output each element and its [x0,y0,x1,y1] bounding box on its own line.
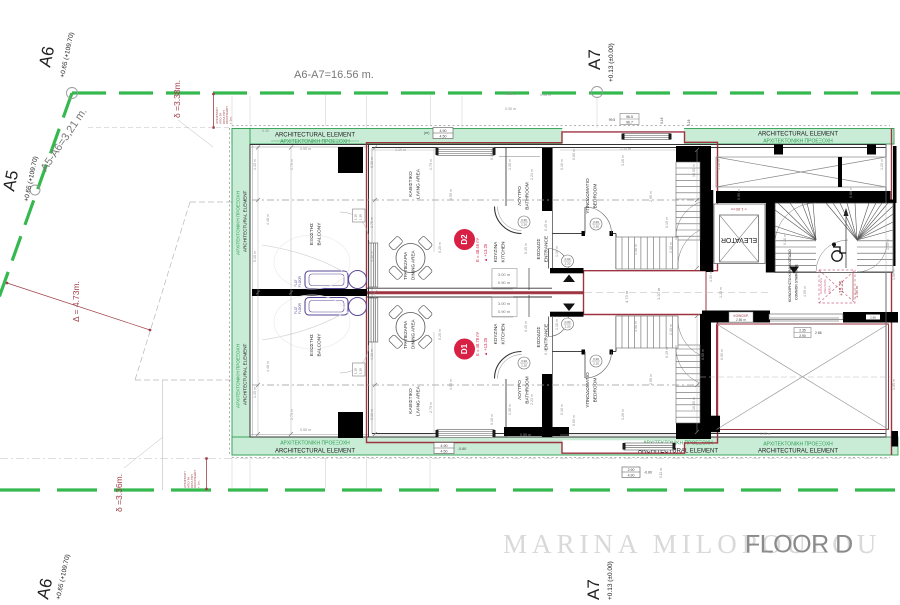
svg-text:D2: D2 [460,234,469,245]
svg-text:2.86 m: 2.86 m [736,318,746,322]
svg-text:0.90: 0.90 [521,359,527,363]
svg-text:+ 1m.: + 1m. [197,480,201,488]
svg-text:+0.13 (±0.00): +0.13 (±0.00) [608,43,615,82]
svg-text:1.10: 1.10 [354,214,358,220]
svg-text:ΚΑΘΙΣΤΙΚΟ: ΚΑΘΙΣΤΙΚΟ [408,171,414,197]
svg-text:+0.13 (±0.00): +0.13 (±0.00) [607,561,614,600]
svg-text:1.45 m: 1.45 m [886,239,890,250]
svg-text:ARCHITECTURAL ELEMENT: ARCHITECTURAL ELEMENT [275,133,355,139]
svg-text:1.35 m: 1.35 m [508,159,512,170]
svg-text:KITCHEN: KITCHEN [501,323,507,345]
svg-text:ΑΡΧΙΤΕΚΤΟΝΙΚΗ ΠΡΟΕΞΟΧΗ: ΑΡΧΙΤΕΚΤΟΝΙΚΗ ΠΡΟΕΞΟΧΗ [236,344,241,408]
svg-text:0.60 m: 0.60 m [572,415,576,426]
svg-text:0.55 m: 0.55 m [300,147,311,151]
svg-text:1.50 m: 1.50 m [892,269,896,280]
svg-text:D1: D1 [460,343,469,354]
svg-text:4.73 m: 4.73 m [624,290,629,303]
svg-text:0.16 m: 0.16 m [540,93,551,97]
svg-text:0.90 m: 0.90 m [720,349,724,360]
svg-text:0.90: 0.90 [593,220,599,224]
svg-text:0.55 m: 0.55 m [520,433,531,437]
svg-text:99.5: 99.5 [609,118,616,122]
svg-text:ΑΜΕΑ: ΑΜΕΑ [827,285,831,294]
svg-text:ΥΠΝΟΔΩΜΑΤΙΟ: ΥΠΝΟΔΩΜΑΤΙΟ [585,178,591,214]
svg-text:FLOOR: FLOOR [298,302,302,314]
svg-text:ΤΡΑΠΕΖΑΡΙΑ: ΤΡΑΠΕΖΑΡΙΑ [403,251,408,280]
svg-text:0.30 m: 0.30 m [370,157,374,168]
svg-text:DINING AREA: DINING AREA [411,318,416,349]
svg-text:A7: A7 [584,579,603,600]
svg-text:16.50 m: 16.50 m [692,397,696,410]
svg-text:2.35: 2.35 [799,329,806,333]
svg-text:1.15 m: 1.15 m [253,387,257,398]
svg-text:1.30: 1.30 [359,368,363,374]
svg-text:1.28 m: 1.28 m [717,159,721,170]
svg-text:2.20: 2.20 [565,325,571,329]
svg-text:2.23 m: 2.23 m [530,169,534,180]
svg-text:4.48 m: 4.48 m [266,361,270,372]
svg-text:A7: A7 [585,49,604,70]
svg-text:ARCHITECTURAL ELEMENT: ARCHITECTURAL ELEMENT [243,190,248,252]
svg-text:ΤΡΑΠΕΖΑΡΙΑ: ΤΡΑΠΕΖΑΡΙΑ [403,320,408,349]
svg-text:0.90 m: 0.90 m [737,189,741,200]
svg-text:2.90: 2.90 [628,468,635,472]
svg-text:BEDROOM: BEDROOM [593,378,599,403]
svg-text:1.20 m: 1.20 m [656,287,661,300]
svg-text:DINING AREA: DINING AREA [411,249,416,280]
svg-text:3.00 m: 3.00 m [498,272,511,277]
svg-text:2.95 m: 2.95 m [649,191,653,202]
svg-text:0.45 m: 0.45 m [544,220,548,231]
svg-text:2.75 m: 2.75 m [370,217,374,228]
svg-text:0.90 m: 0.90 m [498,280,511,285]
svg-text:2.86: 2.86 [870,316,876,320]
svg-text:96.5: 96.5 [626,115,633,119]
svg-text:3.98 m: 3.98 m [634,321,638,332]
svg-text:Ε = 48.78 m²: Ε = 48.78 m² [475,331,480,356]
svg-text:ΑΡΧΙΤΕΚΤΟΝΙΚΗ ΠΡΟΕΞΟΧΗ: ΑΡΧΙΤΕΚΤΟΝΙΚΗ ΠΡΟΕΞΟΧΗ [763,442,833,448]
svg-text:2.75 m: 2.75 m [290,159,294,170]
svg-text:KITCHEN: KITCHEN [501,241,507,263]
svg-text:2.23 m: 2.23 m [530,394,534,405]
svg-text:0.45 m: 0.45 m [544,344,548,355]
svg-text:4.55 m: 4.55 m [449,189,453,200]
svg-text:ΛΟΥΤΡΟ: ΛΟΥΤΡΟ [517,186,523,206]
svg-text:1.05 m: 1.05 m [892,379,896,390]
svg-text:2.30 m: 2.30 m [669,324,673,335]
svg-text:▲ +13.25: ▲ +13.25 [483,337,488,356]
svg-text:4.55 m: 4.55 m [449,379,453,390]
svg-text:FLOOR D: FLOOR D [745,531,853,559]
svg-text:▲ +13.25: ▲ +13.25 [483,243,488,262]
svg-text:0.20 m: 0.20 m [438,329,442,340]
svg-text:0.60 m: 0.60 m [572,149,576,160]
svg-text:δ =3.38m.: δ =3.38m. [172,80,182,118]
svg-text:4.90: 4.90 [440,129,447,133]
svg-text:FLOOR: FLOOR [298,275,302,287]
svg-text:0.19 m: 0.19 m [665,347,669,358]
svg-text:BEDROOM: BEDROOM [593,184,599,209]
svg-text:3.26 m: 3.26 m [621,409,625,420]
svg-text:5.10 m: 5.10 m [253,251,257,262]
svg-text:ΑΡΧΙΤΕΚΤΟΝΙΚΗ ΠΡΟΕΞΟΧΗ: ΑΡΧΙΤΕΚΤΟΝΙΚΗ ΠΡΟΕΞΟΧΗ [280,441,350,447]
svg-text:2.90: 2.90 [799,334,806,338]
svg-text:+13.25: +13.25 [839,280,845,296]
svg-text:4.90: 4.90 [441,444,448,448]
svg-text:0.16 m: 0.16 m [490,414,494,425]
svg-text:1.50 m: 1.50 m [709,271,713,282]
svg-text:0.45 m: 0.45 m [524,243,528,254]
svg-text:(m): (m) [424,131,429,135]
svg-text:ΚΟΙΝΟΧΡΗΣΤΟ ΚΛΙΜΑΚΟΣΤΑΣΙΟ: ΚΟΙΝΟΧΡΗΣΤΟ ΚΛΙΜΑΚΟΣΤΑΣΙΟ [788,249,792,302]
svg-text:2.95 m: 2.95 m [649,374,653,385]
svg-text:0.90: 0.90 [565,257,571,261]
svg-text:4.59 m: 4.59 m [803,286,807,297]
svg-text:1.20 m: 1.20 m [880,159,884,170]
svg-text:0.16: 0.16 [660,117,664,124]
svg-text:1.10: 1.10 [354,368,358,374]
svg-text:A6: A6 [33,577,56,600]
svg-text:4.10 m: 4.10 m [370,349,374,360]
svg-text:ΑΡΧΙΤΕΚΤΟΝΙΚΗ ΠΡΟΕΞΟΧΗ: ΑΡΧΙΤΕΚΤΟΝΙΚΗ ΠΡΟΕΞΟΧΗ [236,191,241,255]
svg-text:2.30 m: 2.30 m [669,242,673,253]
svg-text:2.79 m: 2.79 m [429,402,433,413]
svg-text:ΚΟΥΖΙΝΑ: ΚΟΥΖΙΝΑ [493,323,499,345]
svg-text:2.20: 2.20 [521,223,527,227]
svg-text:ΥΠΝΟΔΩΜΑΤΙΟ: ΥΠΝΟΔΩΜΑΤΙΟ [585,372,591,408]
svg-text:ΛΟΥΤΡΟ: ΛΟΥΤΡΟ [517,380,523,400]
svg-text:A6-A7=16.56 m.: A6-A7=16.56 m. [294,69,374,81]
svg-text:0.28 m: 0.28 m [783,234,787,245]
svg-text:3.00 m: 3.00 m [498,301,511,306]
svg-text:ARCHITECTURAL ELEMENT: ARCHITECTURAL ELEMENT [758,449,838,455]
svg-text:4.50: 4.50 [440,135,447,139]
svg-text:ENTRANCE: ENTRANCE [544,236,550,262]
svg-text:0.16 m: 0.16 m [560,404,564,415]
svg-text:1.10 m: 1.10 m [620,147,631,151]
svg-text:ΕΙΣΟΔΟΣ: ΕΙΣΟΔΟΣ [536,239,542,260]
svg-text:0.90 m: 0.90 m [760,432,771,436]
svg-text:1.35 m: 1.35 m [508,404,512,415]
svg-text:ΕΞΩΣΤΗΣ: ΕΞΩΣΤΗΣ [309,223,315,245]
svg-text:ΕΞΩΣΤΗΣ: ΕΞΩΣΤΗΣ [309,334,315,356]
svg-text:LIVING AREA: LIVING AREA [416,385,422,416]
svg-text:1.98 m: 1.98 m [854,285,859,298]
svg-text:96.7: 96.7 [626,121,633,125]
svg-text:BALCONY: BALCONY [317,333,323,357]
svg-text:0.16 m: 0.16 m [490,149,494,160]
svg-text:Ε = 48.46 m²: Ε = 48.46 m² [475,237,480,262]
svg-text:BATHROOM: BATHROOM [525,182,531,209]
svg-text:0.20 m: 0.20 m [438,242,442,253]
svg-text:COMMON STAIRCASE: COMMON STAIRCASE [795,264,799,300]
svg-text:-0.60: -0.60 [644,471,652,475]
svg-text:Δ = 4.73m.: Δ = 4.73m. [71,281,81,322]
svg-text:0.55 m: 0.55 m [300,428,311,432]
svg-text:ELEVATOR: ELEVATOR [721,236,757,243]
svg-text:3.98 m: 3.98 m [634,244,638,255]
svg-text:1.16 m: 1.16 m [555,246,559,257]
svg-text:ARCHITECTURAL ELEMENT: ARCHITECTURAL ELEMENT [243,343,248,405]
svg-text:4.50: 4.50 [441,450,448,454]
svg-text:0.60 m: 0.60 m [849,187,853,198]
svg-text:0.12 m: 0.12 m [659,468,663,478]
svg-text:0.90 m: 0.90 m [498,309,511,314]
svg-text:2.20: 2.20 [593,225,599,229]
svg-text:4.48 m: 4.48 m [266,214,270,225]
svg-text:0.90: 0.90 [521,218,527,222]
svg-text:0.55 m: 0.55 m [701,349,705,360]
svg-text:2.75 m: 2.75 m [290,409,294,420]
svg-text:ΑΡΧΙΤΕΚΤΟΝΙΚΗ ΠΡΟΕΞΟΧΗ: ΑΡΧΙΤΕΚΤΟΝΙΚΗ ΠΡΟΕΞΟΧΗ [763,139,833,145]
svg-text:0.16 m: 0.16 m [560,159,564,170]
svg-text:0.90: 0.90 [593,357,599,361]
svg-text:3.26 m: 3.26 m [621,155,625,166]
svg-text:2.79 m: 2.79 m [429,159,433,170]
svg-text:1.30: 1.30 [359,214,363,220]
svg-text:2.86: 2.86 [815,331,822,335]
svg-text:-0.60: -0.60 [458,447,466,451]
svg-text:0.30 m: 0.30 m [505,107,516,111]
svg-text:1.15 m: 1.15 m [253,159,257,170]
svg-text:2.20: 2.20 [593,362,599,366]
svg-text:0.16: 0.16 [687,119,691,126]
svg-text:0.45 m: 0.45 m [524,321,528,332]
svg-text:2.20: 2.20 [521,364,527,368]
svg-text:ΕΙΣΟΔΟΣ: ΕΙΣΟΔΟΣ [536,327,542,348]
svg-text:0.30 m: 0.30 m [370,409,374,420]
svg-text:ARCHITECTURAL ELEMENT: ARCHITECTURAL ELEMENT [758,132,838,138]
svg-text:ΚΑΘΙΣΤΙΚΟ: ΚΑΘΙΣΤΙΚΟ [408,388,414,414]
svg-text:ΚΟΥΖΙΝΑ: ΚΟΥΖΙΝΑ [493,241,499,263]
svg-text:0.90: 0.90 [565,320,571,324]
svg-text:0.55 m: 0.55 m [505,92,516,96]
svg-text:≈ 1.00 m: ≈ 1.00 m [731,207,747,212]
svg-text:0.30: 0.30 [262,129,269,133]
svg-text:0.19 m: 0.19 m [665,217,669,228]
svg-text:2.20: 2.20 [565,262,571,266]
svg-text:4.10 m: 4.10 m [370,251,374,262]
svg-text:1.16 m: 1.16 m [555,319,559,330]
svg-text:BALCONY: BALCONY [317,222,323,246]
svg-text:4.90: 4.90 [628,474,635,478]
svg-text:δ =3.36m.: δ =3.36m. [114,474,124,512]
svg-text:16.50 m: 16.50 m [692,164,696,177]
svg-text:LIVING AREA: LIVING AREA [416,168,422,199]
svg-text:1.20 m: 1.20 m [719,287,723,298]
svg-text:ARCHITECTURAL ELEMENT: ARCHITECTURAL ELEMENT [275,449,355,455]
